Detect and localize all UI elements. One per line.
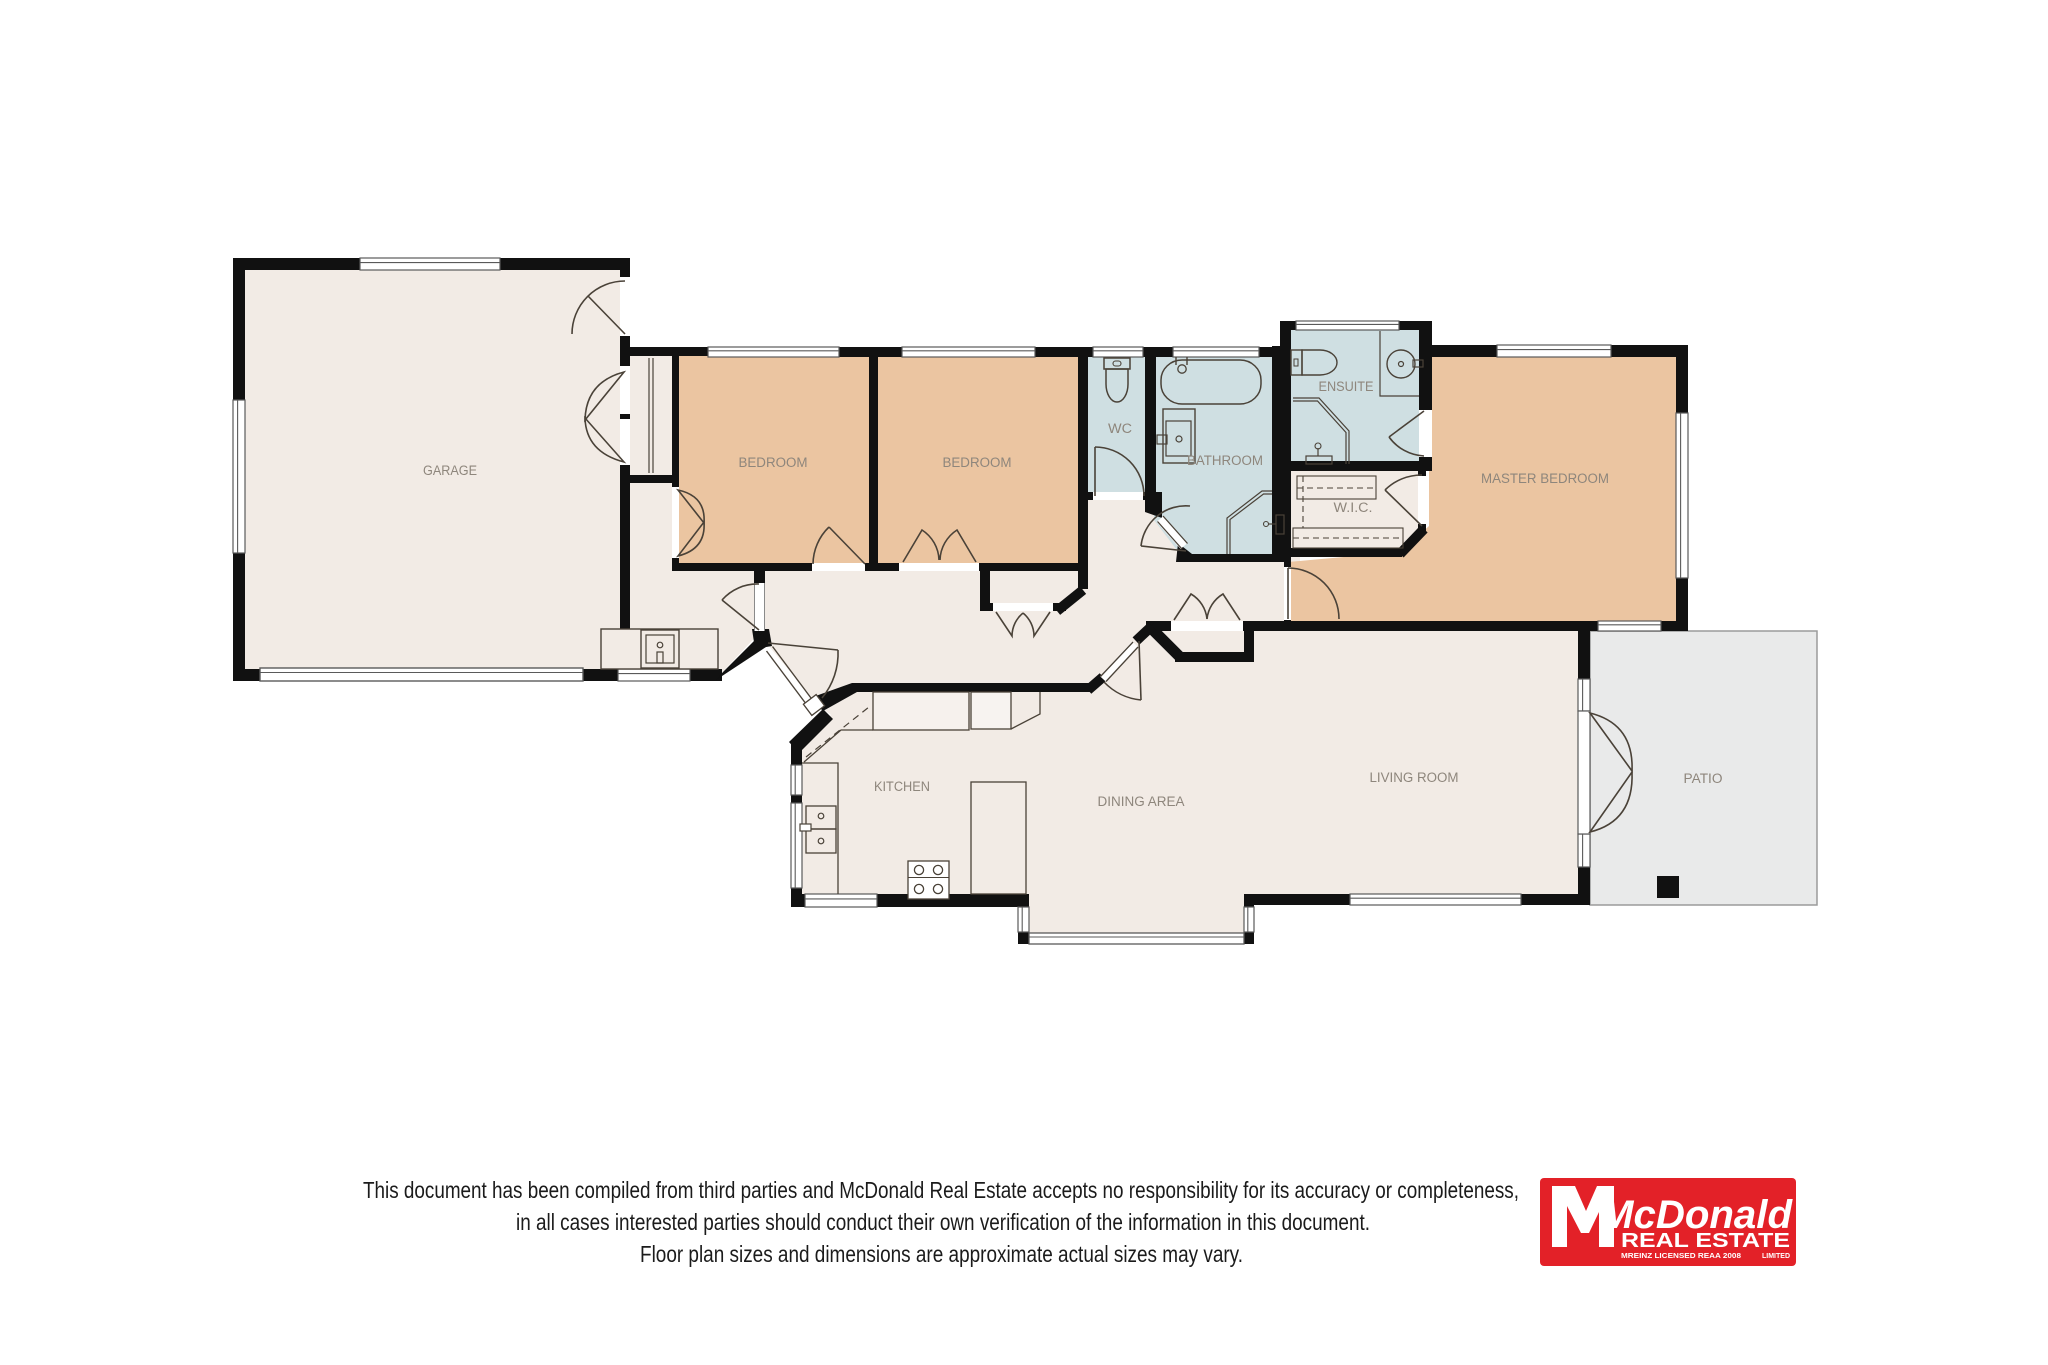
svg-text:in all cases interested partie: in all cases interested parties should c… (516, 1209, 1370, 1235)
svg-text:BEDROOM: BEDROOM (739, 455, 808, 470)
svg-text:LIVING ROOM: LIVING ROOM (1370, 770, 1459, 785)
svg-text:KITCHEN: KITCHEN (874, 779, 930, 794)
svg-text:This document has been compile: This document has been compiled from thi… (363, 1177, 1519, 1203)
svg-text:BATHROOM: BATHROOM (1187, 453, 1263, 468)
svg-text:REAL ESTATE: REAL ESTATE (1621, 1230, 1790, 1252)
svg-text:WC: WC (1108, 421, 1132, 436)
svg-text:BEDROOM: BEDROOM (943, 455, 1012, 470)
svg-text:LIMITED: LIMITED (1762, 1253, 1790, 1260)
svg-text:PATIO: PATIO (1684, 771, 1723, 786)
svg-text:Floor plan sizes and dimension: Floor plan sizes and dimensions are appr… (640, 1241, 1243, 1267)
svg-text:ENSUITE: ENSUITE (1319, 379, 1374, 394)
svg-text:MASTER BEDROOM: MASTER BEDROOM (1481, 471, 1609, 486)
svg-text:DINING AREA: DINING AREA (1098, 794, 1185, 809)
svg-text:GARAGE: GARAGE (423, 463, 477, 478)
svg-text:MREINZ LICENSED REAA 2008: MREINZ LICENSED REAA 2008 (1621, 1253, 1741, 1260)
svg-text:W.I.C.: W.I.C. (1334, 500, 1373, 515)
